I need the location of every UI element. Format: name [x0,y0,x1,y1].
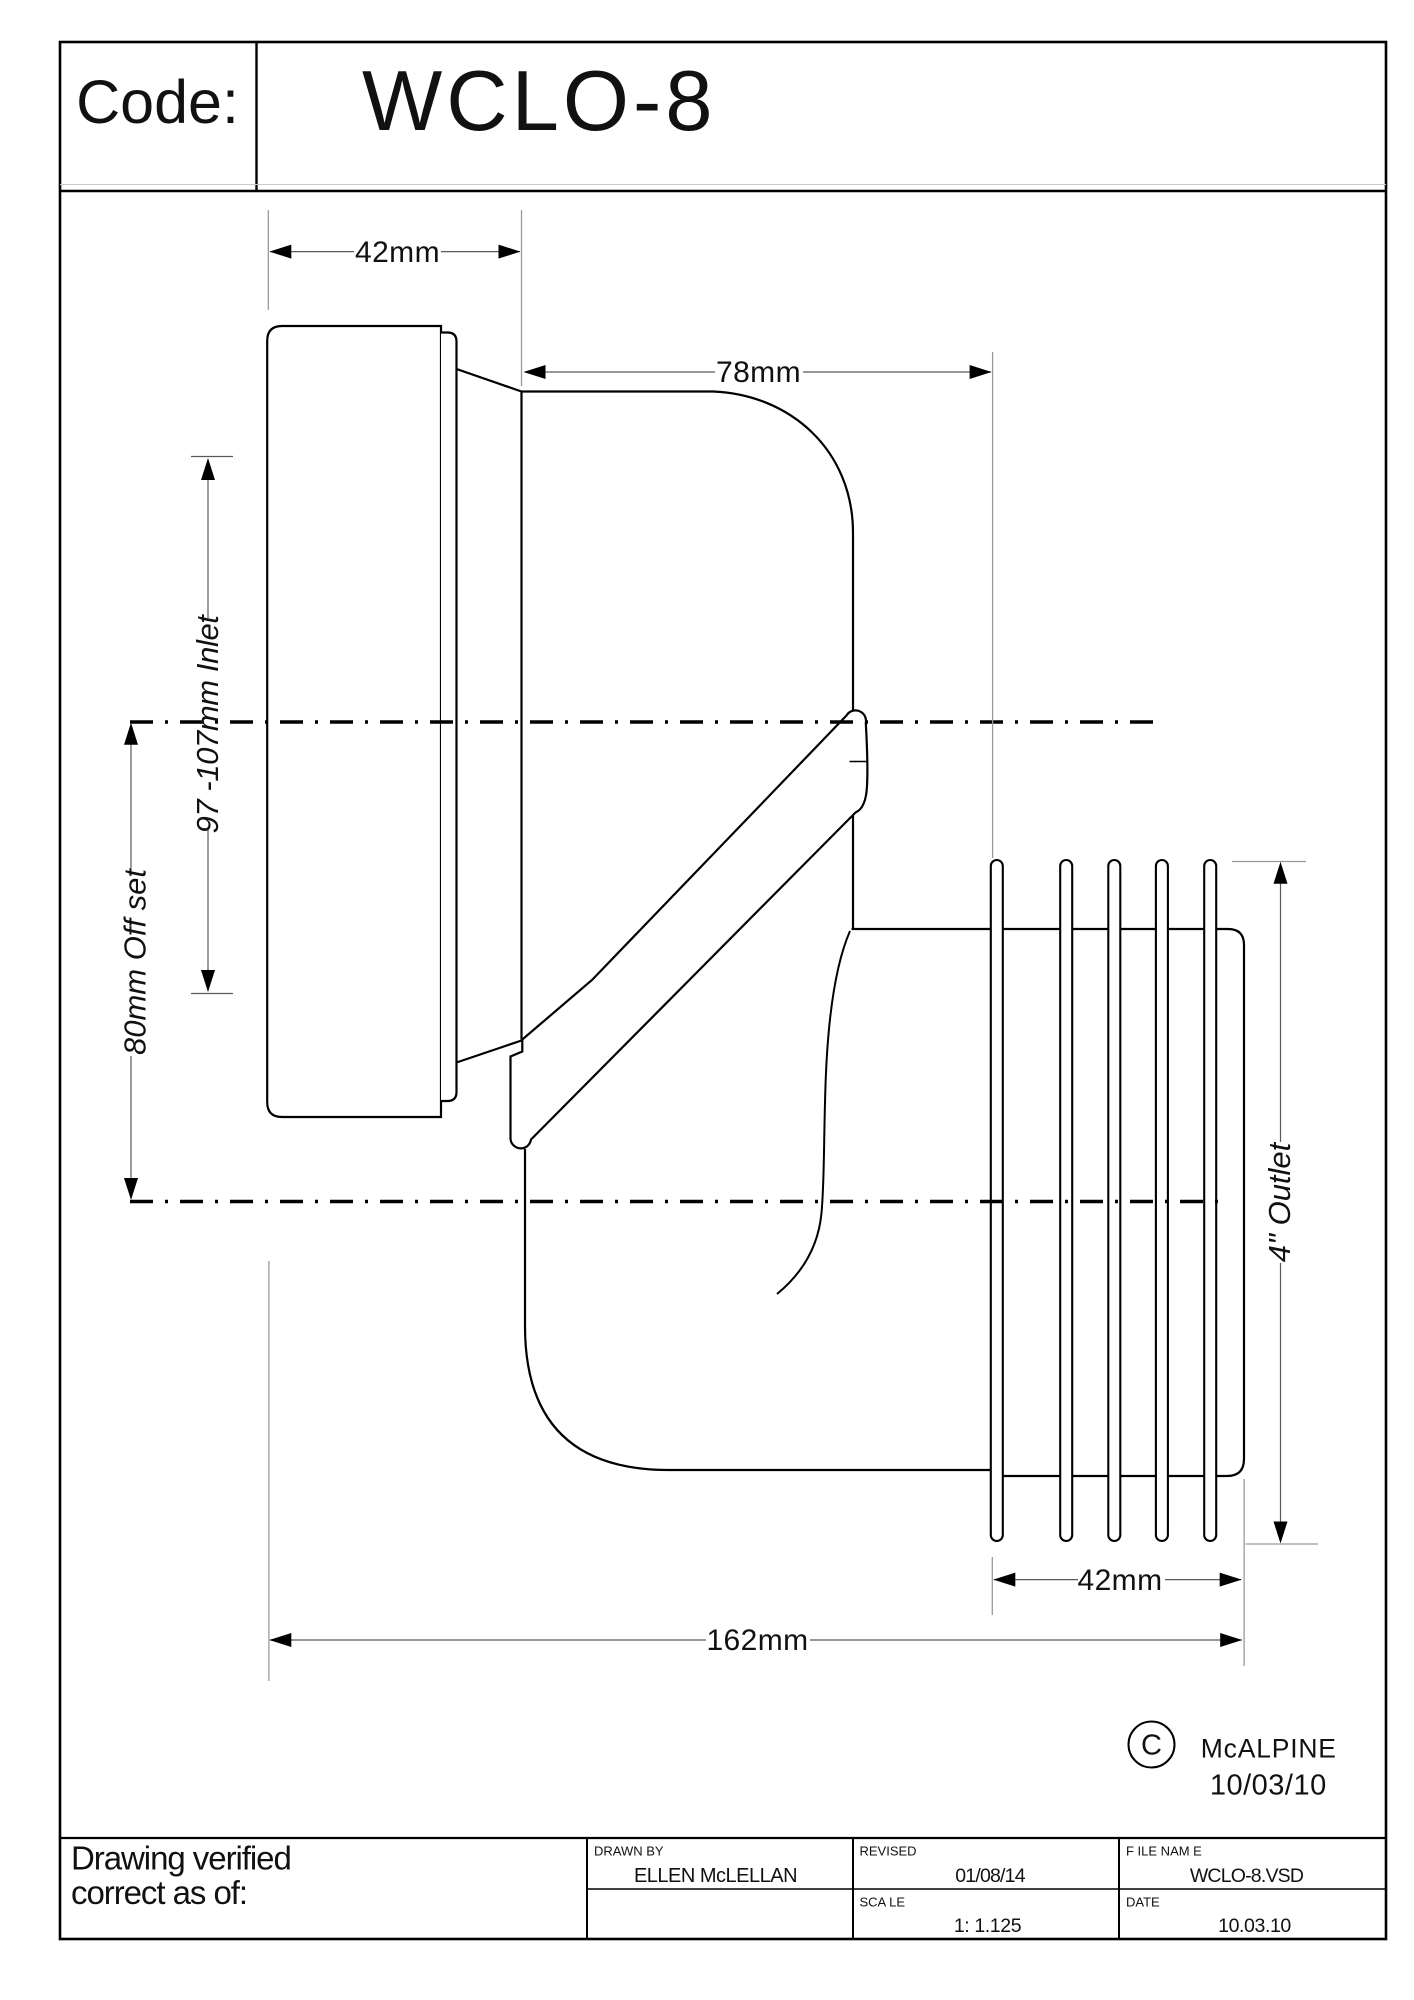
svg-text:10/03/10: 10/03/10 [1210,1770,1327,1802]
svg-text:Code:: Code: [76,68,239,136]
svg-text:F ILE NAM E: F ILE NAM E [1126,1844,1202,1859]
svg-text:McALPINE: McALPINE [1201,1734,1337,1764]
svg-text:42mm: 42mm [1078,1564,1163,1597]
svg-text:01/08/14: 01/08/14 [955,1865,1025,1887]
svg-text:Drawing verified: Drawing verified [71,1840,291,1877]
svg-text:10.03.10: 10.03.10 [1218,1915,1291,1937]
svg-text:DATE: DATE [1126,1894,1160,1909]
svg-text:REVISED: REVISED [860,1844,917,1859]
svg-text:correct as of:: correct as of: [71,1874,247,1911]
svg-text:97 -107mm Inlet: 97 -107mm Inlet [190,614,225,834]
svg-text:4" Outlet: 4" Outlet [1262,1141,1297,1262]
svg-text:C: C [1141,1730,1162,1762]
svg-text:42mm: 42mm [355,236,440,269]
svg-text:78mm: 78mm [716,356,801,389]
svg-text:WCLO-8.VSD: WCLO-8.VSD [1190,1865,1304,1887]
svg-text:DRAWN BY: DRAWN BY [594,1844,664,1859]
svg-text:1: 1.125: 1: 1.125 [954,1915,1022,1937]
svg-text:WCLO-8: WCLO-8 [362,54,717,149]
svg-text:162mm: 162mm [706,1624,808,1657]
svg-text:ELLEN McLELLAN: ELLEN McLELLAN [634,1865,797,1887]
svg-text:80mm Off set: 80mm Off set [118,868,153,1055]
svg-text:SCA LE: SCA LE [860,1894,906,1909]
